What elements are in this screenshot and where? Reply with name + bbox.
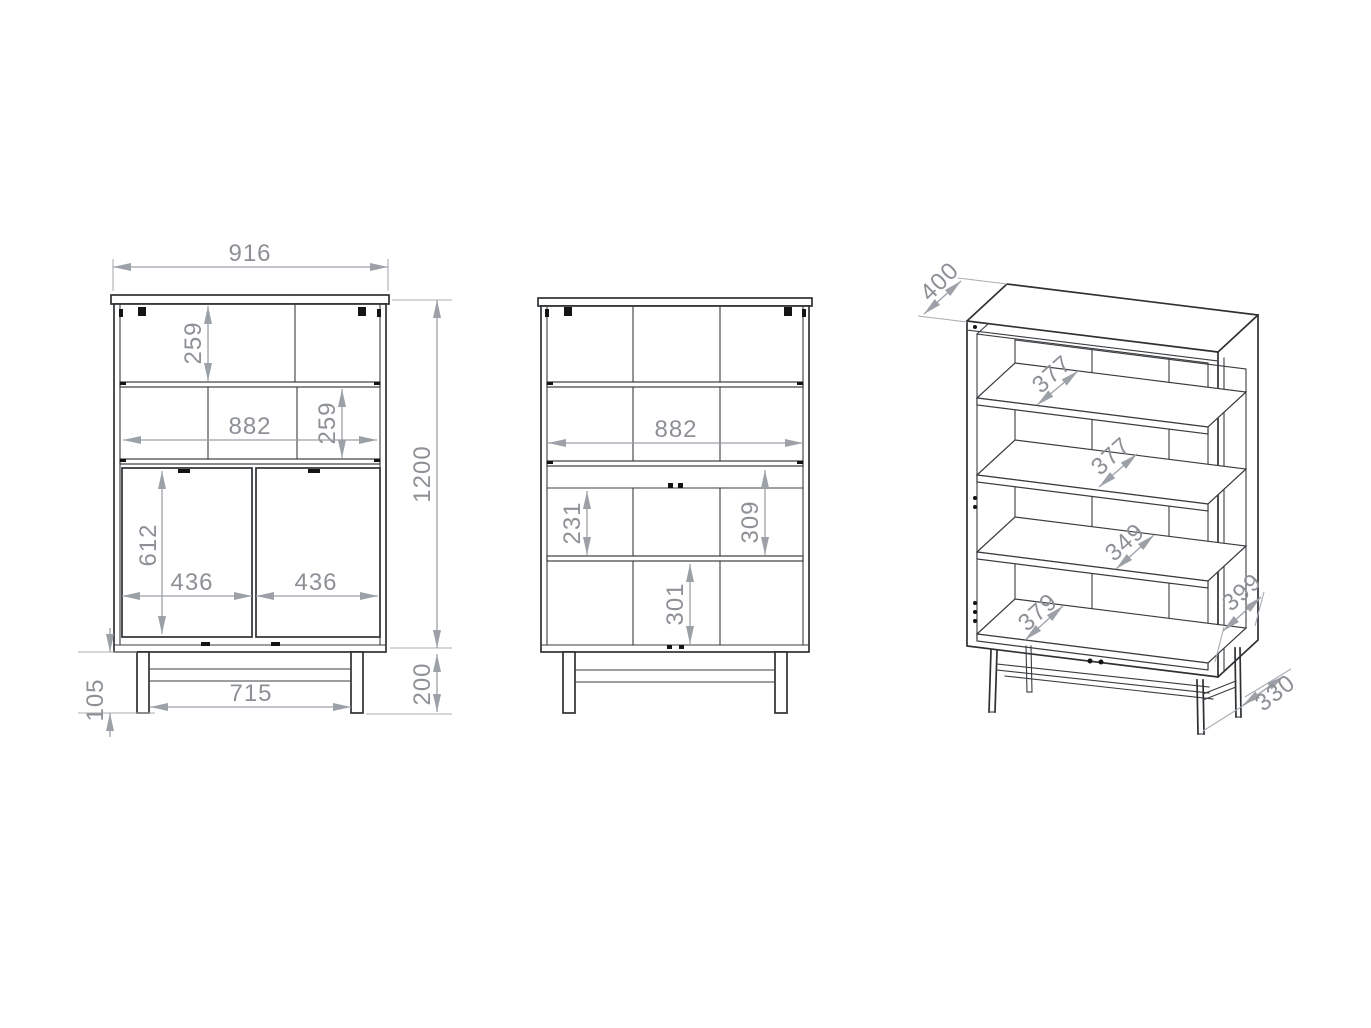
dim-second-shelf-height: 259 [314, 401, 341, 444]
right-door-handle [308, 469, 320, 473]
dim-compartment-height-right: 309 [737, 500, 764, 543]
furniture-dimension-drawing: 916 259 259 882 612 436 436 [0, 0, 1371, 1028]
dim-base-height: 200 [409, 662, 436, 705]
cabinet-structure [111, 295, 389, 713]
dim-top-shelf-height: 259 [180, 321, 207, 364]
dim-right-door-width: 436 [294, 569, 337, 596]
dim-bottom-compartment-height: 301 [662, 582, 689, 625]
dim-interior-width: 882 [654, 416, 697, 443]
right-door [256, 468, 380, 637]
dim-base-inner-width: 715 [229, 680, 272, 707]
left-door-handle [178, 469, 190, 473]
dim-compartment-height-left: 231 [559, 501, 586, 544]
front-view-interior: 882 231 309 301 [538, 298, 812, 713]
dim-left-door-width: 436 [170, 569, 213, 596]
dim-door-height: 612 [135, 523, 162, 566]
dim-base-clearance: 105 [82, 678, 109, 721]
technical-drawing-page: 916 259 259 882 612 436 436 [0, 0, 1371, 1028]
dim-interior-width-front: 882 [228, 413, 271, 440]
dim-overall-width: 916 [228, 240, 271, 267]
dim-overall-height: 1200 [409, 445, 436, 502]
